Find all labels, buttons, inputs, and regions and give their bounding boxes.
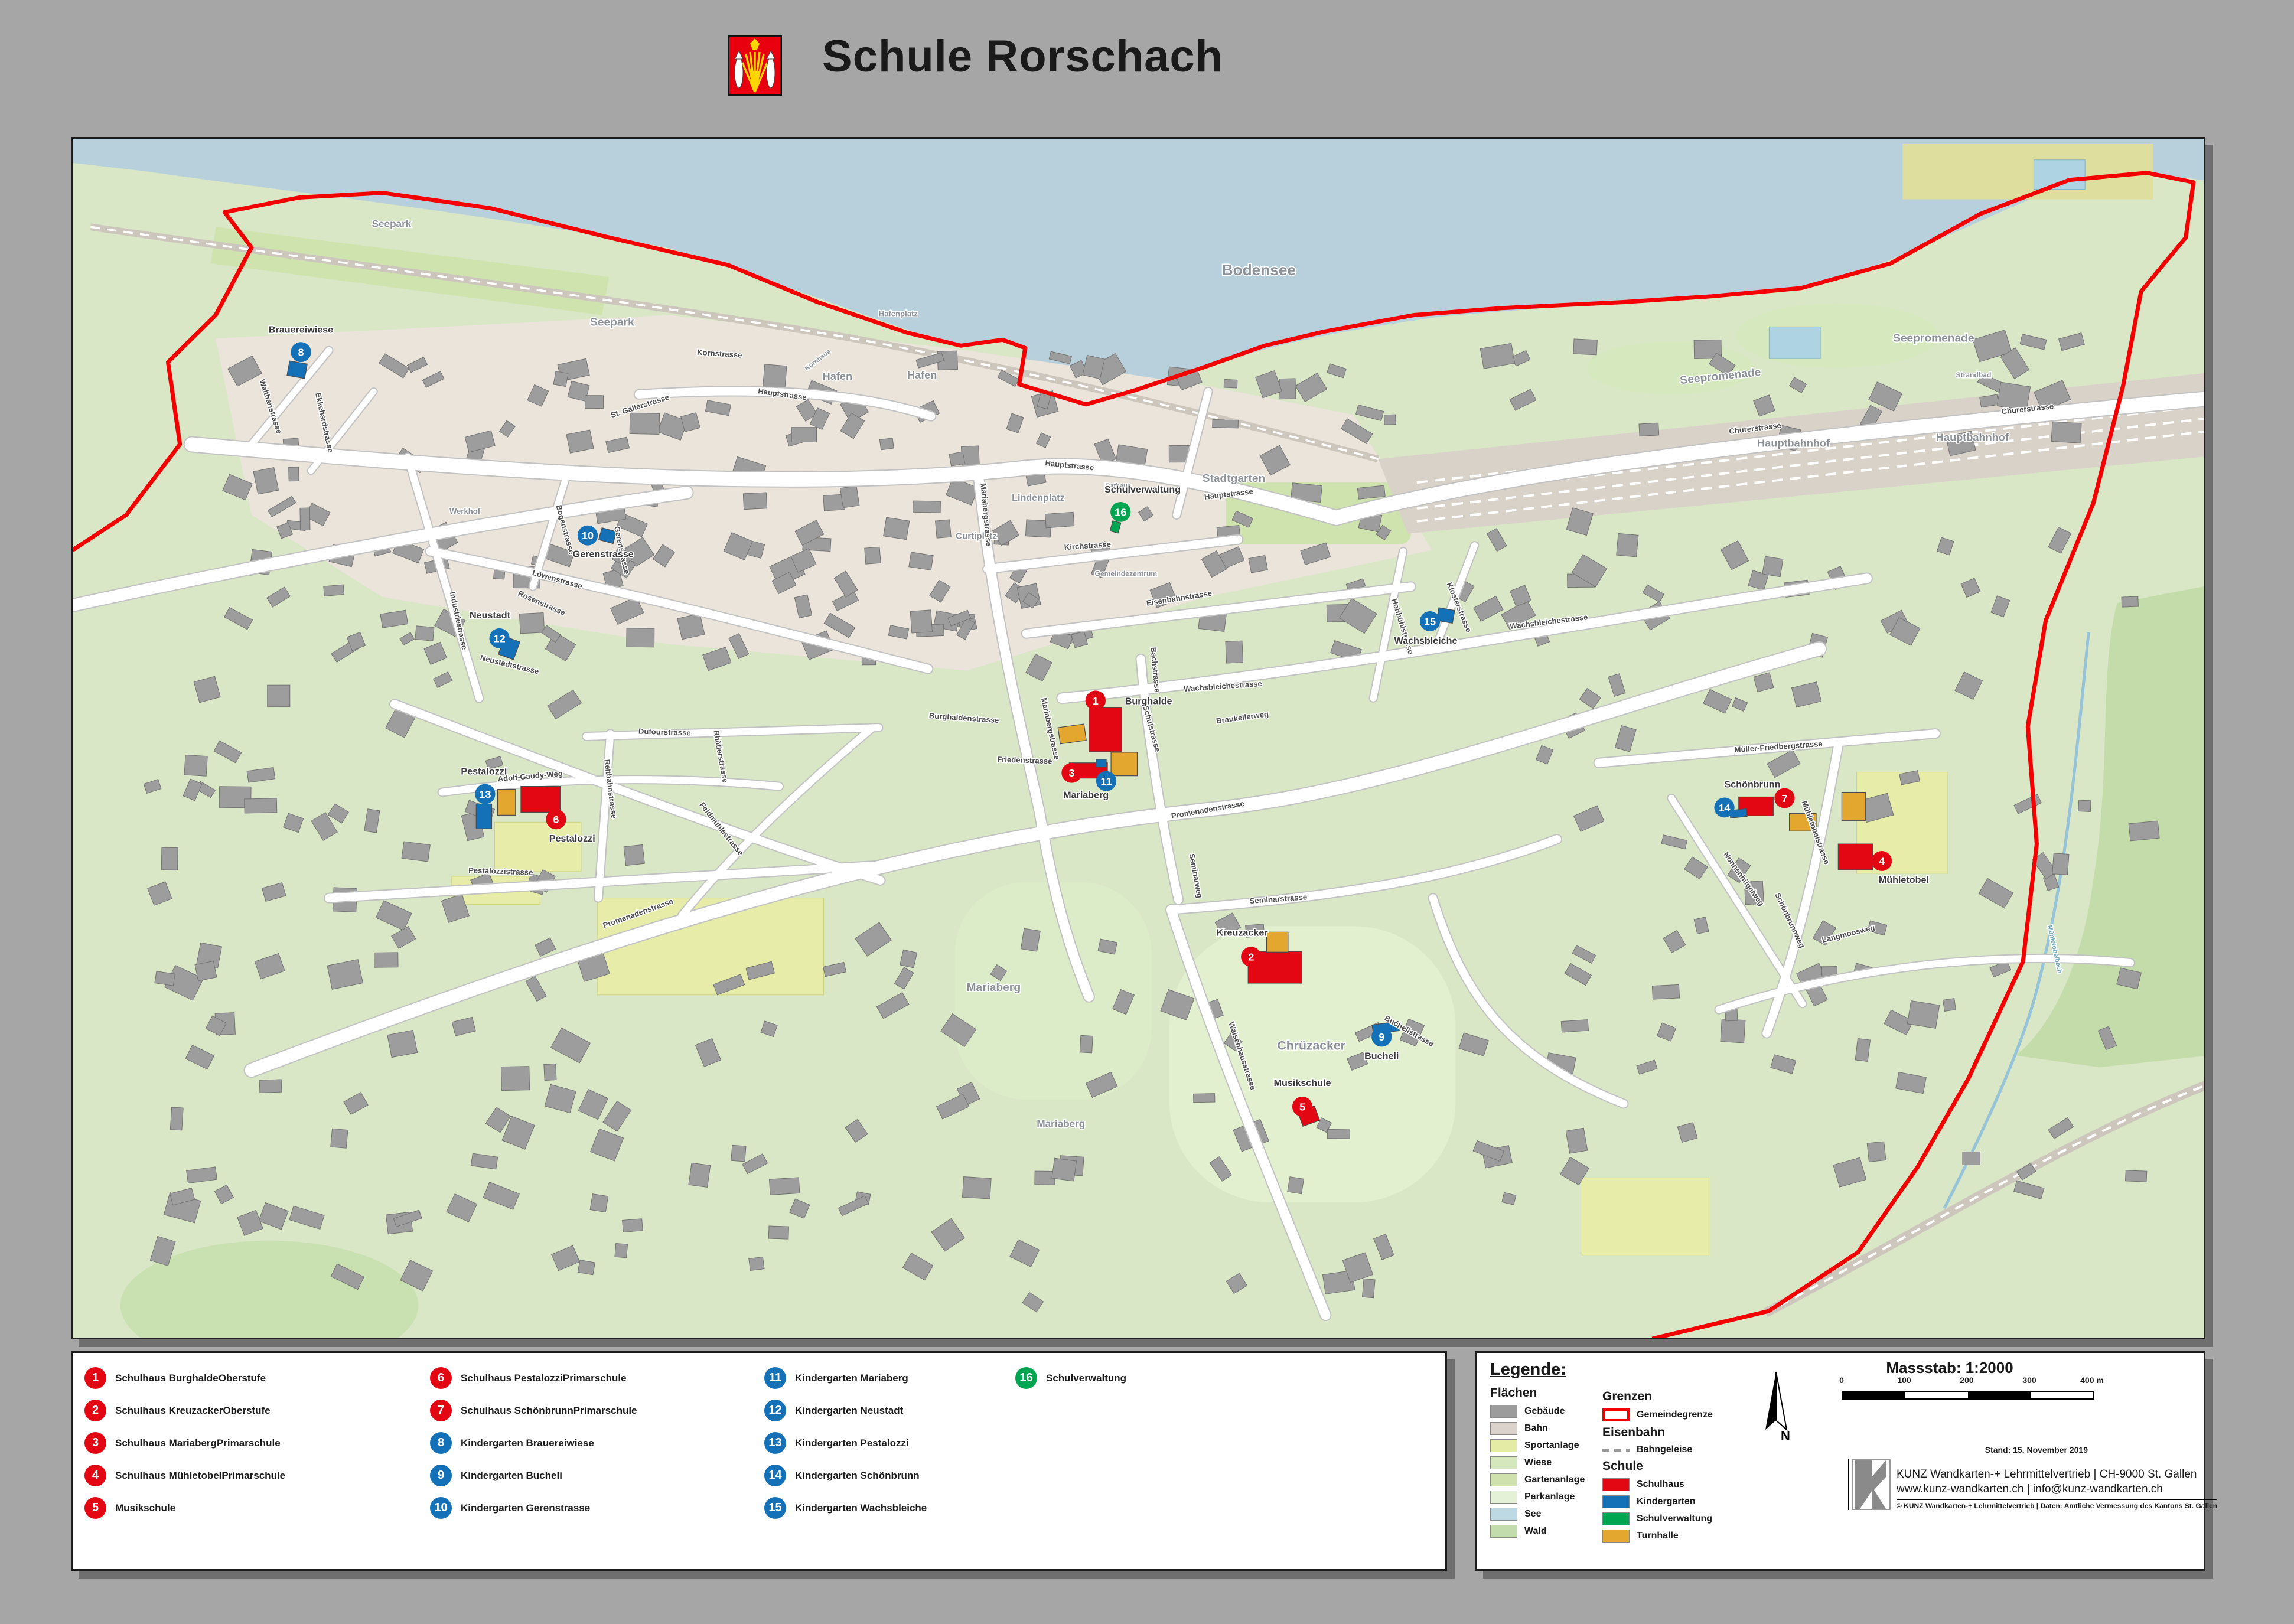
school-legend-item: 7Schulhaus SchönbrunnPrimarschule xyxy=(430,1400,637,1421)
color-swatch xyxy=(1490,1525,1517,1538)
building xyxy=(1288,1177,1304,1194)
building xyxy=(677,614,705,640)
building xyxy=(331,1129,348,1148)
legend-section-title: Grenzen xyxy=(1602,1390,1762,1404)
map-marker-6-pestalozzi[interactable]: 6 xyxy=(546,809,566,829)
svg-text:4: 4 xyxy=(1879,856,1885,868)
svg-text:7: 7 xyxy=(1781,793,1787,804)
building xyxy=(615,1243,628,1257)
map-marker-label: Gerenstrasse xyxy=(573,549,634,560)
svg-text:11: 11 xyxy=(1100,775,1112,787)
building xyxy=(195,961,217,981)
building xyxy=(1963,1152,1980,1165)
legend-item-label: Gemeindegrenze xyxy=(1637,1410,1713,1420)
school-legend-item: 3Schulhaus MariabergPrimarschule xyxy=(84,1432,285,1454)
building xyxy=(1052,1158,1077,1181)
building xyxy=(155,971,175,986)
map-area-label: Seepark xyxy=(590,317,634,329)
legend-item-label: Parkanlage xyxy=(1524,1492,1575,1502)
building xyxy=(300,508,310,530)
color-swatch xyxy=(1490,1473,1517,1486)
building xyxy=(2129,821,2159,841)
building xyxy=(553,371,568,387)
school-building-schulhaus xyxy=(1838,844,1873,870)
legend-item-label: Sportanlage xyxy=(1524,1440,1579,1451)
map-area-label: Mariaberg xyxy=(966,981,1021,994)
legend-item: Schulhaus xyxy=(1602,1478,1762,1491)
school-legend-item: 4Schulhaus MühletobelPrimarschule xyxy=(84,1465,285,1486)
building xyxy=(743,493,767,510)
school-name: Kindergarten Mariaberg xyxy=(795,1372,908,1384)
marker-number-badge: 13 xyxy=(764,1432,786,1454)
scale-tick: 300 xyxy=(2022,1375,2036,1385)
map-marker-13-pestalozzi[interactable]: 13 xyxy=(475,784,495,804)
marker-number-badge: 4 xyxy=(84,1465,106,1486)
school-building-turnhalle xyxy=(1266,932,1288,952)
building xyxy=(245,798,277,813)
marker-number-badge: 5 xyxy=(84,1497,106,1519)
building xyxy=(962,1177,991,1199)
map-area-label: Strandbad xyxy=(1956,371,1992,379)
map-marker-label: Pestalozzi xyxy=(549,833,595,844)
building xyxy=(544,1064,556,1080)
building xyxy=(900,950,917,968)
map-legend-panel: Legende: Flächen GebäudeBahnSportanlageW… xyxy=(1475,1351,2205,1571)
school-building-kindergarten xyxy=(287,361,307,379)
school-level: Primarschule xyxy=(217,1437,281,1449)
building xyxy=(624,844,644,865)
legend-item: Sportanlage xyxy=(1490,1439,1585,1452)
color-swatch xyxy=(1490,1491,1517,1504)
building xyxy=(170,1107,183,1130)
building xyxy=(1357,485,1385,499)
map-marker-12-neustadt[interactable]: 12 xyxy=(489,628,509,648)
legend-item-label: Wald xyxy=(1524,1526,1547,1537)
marker-number-badge: 8 xyxy=(430,1432,452,1454)
building xyxy=(1226,641,1243,663)
building xyxy=(1327,1129,1350,1139)
fill-swatch xyxy=(1602,1495,1630,1508)
building xyxy=(1224,379,1237,388)
legend-item-label: Bahngeleise xyxy=(1637,1444,1692,1455)
building xyxy=(519,612,544,633)
building xyxy=(865,547,881,564)
map-area-label: Seepark xyxy=(372,218,412,229)
map-marker-10-gerenstrasse[interactable]: 10 xyxy=(578,526,598,546)
map-marker-label: Wachsbleiche xyxy=(1394,635,1457,646)
map-marker-16-schulverwaltung[interactable]: 16 xyxy=(1110,502,1130,522)
building xyxy=(1639,423,1659,436)
marker-number-badge: 6 xyxy=(430,1367,452,1389)
svg-text:16: 16 xyxy=(1115,506,1126,518)
school-building-schulhaus xyxy=(521,787,561,813)
publisher-line1: KUNZ Wandkarten-+ Lehrmittelvertrieb | C… xyxy=(1897,1467,2217,1482)
school-name: Schulhaus Schönbrunn xyxy=(461,1405,573,1417)
school-name: Kindergarten Schönbrunn xyxy=(795,1470,920,1482)
color-swatch xyxy=(1490,1508,1517,1521)
building xyxy=(913,501,941,513)
map-date: Stand: 15. November 2019 xyxy=(1985,1445,2088,1455)
legend-item: Gartenanlage xyxy=(1490,1473,1585,1486)
map-marker-14[interactable]: 14 xyxy=(1714,798,1734,818)
building xyxy=(1045,512,1074,528)
map-area-label: Lindenplatz xyxy=(1012,493,1065,503)
legend-item: Bahn xyxy=(1490,1422,1585,1435)
school-legend-item: 12Kindergarten Neustadt xyxy=(764,1400,927,1421)
kunz-logo xyxy=(1852,1459,1891,1510)
map-area-label: Bodensee xyxy=(1222,261,1296,279)
building xyxy=(1021,928,1040,951)
map-area-label: Seepromenade xyxy=(1893,332,1974,344)
school-legend-column: 1Schulhaus BurghaldeOberstufe2Schulhaus … xyxy=(84,1367,285,1530)
legend-item-label: Gebäude xyxy=(1524,1406,1565,1417)
scale-tick: 0 xyxy=(1839,1375,1844,1385)
marker-number-badge: 3 xyxy=(84,1432,106,1454)
legend-item: See xyxy=(1490,1508,1585,1521)
scale-segment xyxy=(2031,1392,2093,1398)
building xyxy=(289,467,299,481)
color-swatch xyxy=(1490,1439,1517,1452)
map-marker-label: Schulverwaltung xyxy=(1104,484,1181,495)
legend-item-label: Gartenanlage xyxy=(1524,1475,1585,1485)
map-marker-4-mühletobel[interactable]: 4 xyxy=(1872,851,1892,871)
building xyxy=(2051,422,2081,443)
school-legend-item: 2Schulhaus KreuzackerOberstufe xyxy=(84,1400,285,1421)
svg-text:1: 1 xyxy=(1093,695,1099,707)
school-building-turnhalle xyxy=(1058,724,1086,744)
school-level: Primarschule xyxy=(221,1470,285,1482)
school-legend-column: 16Schulverwaltung xyxy=(1015,1367,1142,1400)
school-name: Schulhaus Mariaberg xyxy=(115,1437,217,1449)
legend-item-label: Bahn xyxy=(1524,1423,1548,1434)
map-marker-7-schönbrunn[interactable]: 7 xyxy=(1774,788,1794,808)
building xyxy=(731,1145,746,1162)
map-marker-label: Bucheli xyxy=(1364,1051,1399,1061)
building xyxy=(259,1080,282,1093)
legend-item: Gebäude xyxy=(1490,1405,1585,1418)
marker-number-badge: 2 xyxy=(84,1400,106,1421)
building xyxy=(1652,984,1679,999)
legend-item: Parkanlage xyxy=(1490,1491,1585,1504)
color-swatch xyxy=(1490,1456,1517,1469)
map-marker-5-musikschule[interactable]: 5 xyxy=(1292,1097,1312,1117)
legend-item-label: Schulhaus xyxy=(1637,1479,1684,1490)
school-level: Oberstufe xyxy=(219,1372,266,1384)
map-marker-9-bucheli[interactable]: 9 xyxy=(1371,1027,1392,1047)
svg-text:5: 5 xyxy=(1299,1101,1305,1113)
marker-number-badge: 11 xyxy=(764,1367,786,1389)
school-name: Schulhaus Pestalozzi xyxy=(461,1372,563,1384)
color-swatch xyxy=(1490,1422,1517,1435)
school-legend-item: 9Kindergarten Bucheli xyxy=(430,1465,637,1486)
building xyxy=(161,847,178,870)
school-legend-item: 10Kindergarten Gerenstrasse xyxy=(430,1497,637,1519)
marker-number-badge: 7 xyxy=(430,1400,452,1421)
building xyxy=(590,1194,608,1212)
map-panel: BodenseeSeeparkSeeparkHafenHafenHafenpla… xyxy=(71,137,2205,1339)
map-marker-label: Kreuzacker xyxy=(1217,927,1268,938)
svg-text:10: 10 xyxy=(582,530,594,542)
school-level: Oberstufe xyxy=(223,1405,270,1417)
building xyxy=(840,486,859,508)
marker-number-badge: 14 xyxy=(764,1465,786,1486)
building xyxy=(387,1030,418,1057)
fill-swatch xyxy=(1602,1478,1630,1491)
school-name: Kindergarten Gerenstrasse xyxy=(461,1502,590,1514)
school-legend-item: 8Kindergarten Brauereiwiese xyxy=(430,1432,637,1454)
svg-text:14: 14 xyxy=(1718,802,1730,814)
map-marker-label: Burghalde xyxy=(1125,696,1172,706)
legend-flaechen: Flächen GebäudeBahnSportanlageWieseGarte… xyxy=(1490,1386,1585,1542)
building xyxy=(763,364,787,388)
publisher-block: KUNZ Wandkarten-+ Lehrmittelvertrieb | C… xyxy=(1848,1459,2217,1510)
legend-item-label: Wiese xyxy=(1524,1457,1552,1468)
building xyxy=(184,755,207,776)
school-name: Kindergarten Brauereiwiese xyxy=(461,1437,594,1449)
building xyxy=(1362,1279,1375,1297)
svg-text:13: 13 xyxy=(479,788,491,800)
building xyxy=(884,517,910,540)
building xyxy=(501,1067,529,1091)
school-name: Schulhaus Kreuzacker xyxy=(115,1405,223,1417)
map-area-label: Hauptbahnhof xyxy=(1757,438,1830,449)
marker-number-badge: 15 xyxy=(764,1497,786,1519)
map-marker-label: Mariaberg xyxy=(1063,790,1109,801)
map-marker-label: Pestalozzi xyxy=(461,767,507,777)
svg-text:8: 8 xyxy=(298,347,304,358)
school-name: Schulverwaltung xyxy=(1046,1372,1142,1384)
map-marker-label: Brauereiwiese xyxy=(269,324,333,335)
building xyxy=(949,452,965,466)
map-area-label: Mariaberg xyxy=(1037,1118,1085,1130)
school-name: Kindergarten Pestalozzi xyxy=(795,1437,909,1449)
legend-section-title: Schule xyxy=(1602,1459,1762,1473)
building xyxy=(268,685,290,707)
school-name: Kindergarten Bucheli xyxy=(461,1470,562,1482)
school-list-legend: 1Schulhaus BurghaldeOberstufe2Schulhaus … xyxy=(71,1351,1447,1571)
map-marker-label: Schönbrunn xyxy=(1725,780,1781,790)
building xyxy=(2052,853,2069,875)
map-area-label: Hafen xyxy=(907,369,937,381)
building xyxy=(324,585,344,596)
building xyxy=(1867,1142,1886,1162)
legend-flaechen-title: Flächen xyxy=(1490,1386,1585,1400)
marker-number-badge: 16 xyxy=(1015,1367,1037,1389)
school-building-turnhalle xyxy=(1842,793,1865,821)
school-building-kindergarten xyxy=(476,804,491,829)
school-legend-column: 11Kindergarten Mariaberg12Kindergarten N… xyxy=(764,1367,927,1530)
building xyxy=(2078,800,2091,812)
svg-text:2: 2 xyxy=(1248,951,1254,963)
building xyxy=(910,610,932,633)
building xyxy=(374,953,398,967)
map-marker-2-kreuzacker[interactable]: 2 xyxy=(1241,947,1261,967)
legend-section-title: Eisenbahn xyxy=(1602,1426,1762,1440)
legend-item: Wald xyxy=(1490,1525,1585,1538)
school-name: Kindergarten Neustadt xyxy=(795,1405,903,1417)
building xyxy=(1249,555,1267,573)
scalebar-title: Massstab: 1:2000 xyxy=(1808,1359,2091,1377)
building xyxy=(1617,533,1638,557)
building xyxy=(791,428,816,442)
scale-tick: 400 m xyxy=(2080,1375,2104,1385)
legend-item: Wiese xyxy=(1490,1456,1585,1469)
building xyxy=(689,1163,711,1187)
map-marker-15-wachsbleiche[interactable]: 15 xyxy=(1420,611,1440,631)
building xyxy=(630,413,660,434)
school-legend-column: 6Schulhaus PestalozziPrimarschule7Schulh… xyxy=(430,1367,637,1530)
scale-segment xyxy=(1905,1392,1968,1398)
school-legend-item: 14Kindergarten Schönbrunn xyxy=(764,1465,927,1486)
svg-text:12: 12 xyxy=(494,632,506,644)
building xyxy=(402,842,430,862)
school-legend-item: 1Schulhaus BurghaldeOberstufe xyxy=(84,1367,285,1389)
building xyxy=(1213,419,1239,428)
legend-item-label: Kindergarten xyxy=(1637,1496,1696,1507)
school-legend-item: 6Schulhaus PestalozziPrimarschule xyxy=(430,1367,637,1389)
map-marker-11[interactable]: 11 xyxy=(1096,771,1116,791)
map-marker-1-burghalde[interactable]: 1 xyxy=(1086,690,1106,710)
map-marker-label: Mühletobel xyxy=(1879,875,1929,885)
map-area-label: Hafenplatz xyxy=(879,309,918,318)
map-area-label: Werkhof xyxy=(449,507,481,516)
building xyxy=(2126,1170,2147,1182)
map-marker-8-brauereiwiese[interactable]: 8 xyxy=(291,342,311,362)
building xyxy=(623,1219,643,1232)
legend-item-label: Schulverwaltung xyxy=(1637,1514,1712,1524)
map-marker-label: Musikschule xyxy=(1274,1078,1331,1088)
school-legend-item: 5Musikschule xyxy=(84,1497,285,1519)
map-area-label: Stadtgarten xyxy=(1203,472,1265,485)
map-marker-label: Neustadt xyxy=(470,610,511,621)
legend-item-label: See xyxy=(1524,1509,1541,1519)
svg-text:3: 3 xyxy=(1068,767,1074,779)
school-legend-item: 13Kindergarten Pestalozzi xyxy=(764,1432,927,1454)
outline-swatch xyxy=(1602,1408,1630,1421)
legend-item: Bahngeleise xyxy=(1602,1444,1762,1455)
fill-swatch xyxy=(1602,1512,1630,1525)
school-level: Primarschule xyxy=(573,1405,637,1417)
building xyxy=(1721,1019,1745,1042)
scale-segment xyxy=(1843,1392,1905,1398)
north-label: N xyxy=(1781,1429,1790,1443)
building xyxy=(1194,1094,1215,1103)
legend-item: Kindergarten xyxy=(1602,1495,1762,1508)
building xyxy=(879,438,894,450)
school-building-turnhalle xyxy=(498,790,516,816)
building xyxy=(1762,556,1783,577)
building xyxy=(1855,1039,1870,1062)
marker-number-badge: 9 xyxy=(430,1465,452,1486)
map-area-label: Hafen xyxy=(823,370,852,382)
rorschach-coat-of-arms xyxy=(728,35,782,99)
map-area-label: Gemeindezentrum xyxy=(1095,569,1158,578)
school-building-kindergarten xyxy=(1096,759,1106,767)
building xyxy=(253,468,279,494)
map-street-label: Dufourstrasse xyxy=(638,727,691,738)
school-legend-item: 16Schulverwaltung xyxy=(1015,1367,1142,1389)
marker-number-badge: 1 xyxy=(84,1367,106,1389)
building xyxy=(585,396,604,409)
marker-number-badge: 10 xyxy=(430,1497,452,1519)
school-building-schulhaus xyxy=(1089,707,1122,752)
school-name: Kindergarten Wachsbleiche xyxy=(795,1502,927,1514)
fill-swatch xyxy=(1602,1530,1630,1543)
map-area-label: Chrüzacker xyxy=(1277,1039,1345,1053)
building xyxy=(1573,339,1598,355)
building xyxy=(909,552,933,570)
page-title: Schule Rorschach xyxy=(822,31,1223,82)
school-legend-item: 11Kindergarten Mariaberg xyxy=(764,1367,927,1389)
building xyxy=(749,1257,764,1270)
legend-item: Schulverwaltung xyxy=(1602,1512,1762,1525)
legend-item-label: Turnhalle xyxy=(1637,1531,1679,1541)
building xyxy=(1384,415,1396,425)
legend-item: Turnhalle xyxy=(1602,1530,1762,1543)
school-legend-item: 15Kindergarten Wachsbleiche xyxy=(764,1497,927,1519)
scale-tick: 200 xyxy=(1960,1375,1973,1385)
building xyxy=(768,1226,788,1239)
building xyxy=(1279,379,1296,399)
city-map: BodenseeSeeparkSeeparkHafenHafenHafenpla… xyxy=(73,139,2204,1338)
legend-title: Legende: xyxy=(1490,1360,1566,1380)
school-name: Schulhaus Mühletobel xyxy=(115,1470,221,1482)
building xyxy=(2122,596,2138,607)
svg-text:9: 9 xyxy=(1379,1031,1384,1043)
building xyxy=(578,1260,595,1275)
scale-segment xyxy=(1968,1392,2031,1398)
map-marker-3-mariaberg[interactable]: 3 xyxy=(1061,763,1081,783)
scalebar xyxy=(1842,1391,2094,1400)
marker-number-badge: 12 xyxy=(764,1400,786,1421)
north-arrow: N xyxy=(1757,1369,1795,1449)
legend-sections: GrenzenGemeindegrenzeEisenbahnBahngeleis… xyxy=(1602,1386,1762,1547)
building xyxy=(1907,1001,1939,1029)
dash-swatch xyxy=(1602,1449,1630,1452)
legend-item: Gemeindegrenze xyxy=(1602,1408,1762,1421)
school-level: Primarschule xyxy=(563,1372,627,1384)
publisher-copyright: © KUNZ Wandkarten-+ Lehrmittelvertrieb |… xyxy=(1897,1499,2217,1510)
building xyxy=(936,520,952,538)
map-area-label: Hauptbahnhof xyxy=(1936,432,2009,443)
building xyxy=(415,626,434,641)
building xyxy=(1561,1020,1588,1032)
svg-text:6: 6 xyxy=(553,814,559,826)
svg-text:15: 15 xyxy=(1424,616,1436,628)
building xyxy=(769,1178,799,1195)
building xyxy=(1080,1035,1093,1053)
color-swatch xyxy=(1490,1405,1517,1418)
school-name: Schulhaus Burghalde xyxy=(115,1372,219,1384)
publisher-line2: www.kunz-wandkarten.ch | info@kunz-wandk… xyxy=(1897,1482,2217,1496)
lido-pool xyxy=(1769,327,1820,358)
building xyxy=(627,628,654,647)
scale-tick: 100 xyxy=(1897,1375,1911,1385)
school-building-turnhalle xyxy=(1111,752,1137,776)
seepromenade-field xyxy=(1902,144,2153,200)
school-name: Musikschule xyxy=(115,1502,211,1514)
building xyxy=(1943,999,1956,1012)
building xyxy=(1566,1128,1588,1153)
